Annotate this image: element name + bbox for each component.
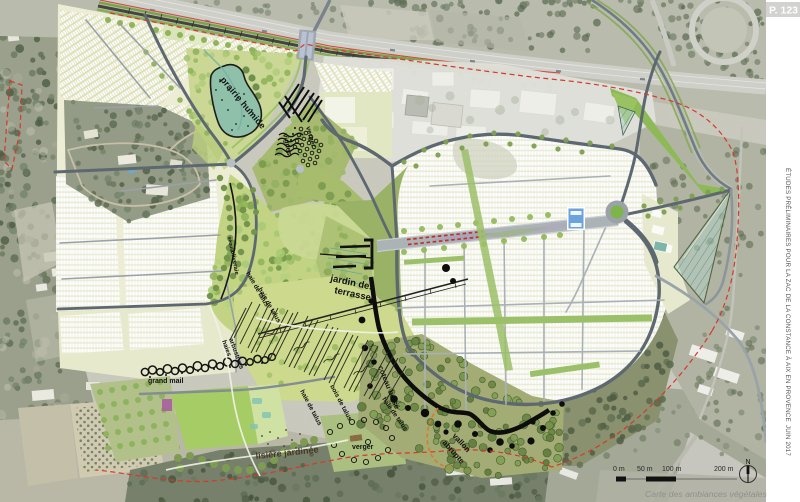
svg-text:ÉTUDES PRÉLIMINAIRES POUR LA: ÉTUDES PRÉLIMINAIRES POUR LA ZAC DE LA C…	[784, 168, 791, 422]
svg-text:100 m: 100 m	[662, 466, 682, 473]
svg-text:grand mail: grand mail	[148, 378, 183, 385]
svg-text:N: N	[745, 459, 750, 466]
svg-text:P. 123: P. 123	[769, 5, 798, 17]
svg-text:Carte des ambiances végétales: Carte des ambiances végétales	[645, 489, 767, 499]
svg-text:50 m: 50 m	[637, 466, 653, 473]
svg-text:0 m: 0 m	[613, 466, 625, 473]
svg-text:200 m: 200 m	[714, 466, 734, 473]
svg-text:JUIN 2017: JUIN 2017	[784, 425, 791, 456]
svg-text:verger: verger	[352, 444, 374, 451]
